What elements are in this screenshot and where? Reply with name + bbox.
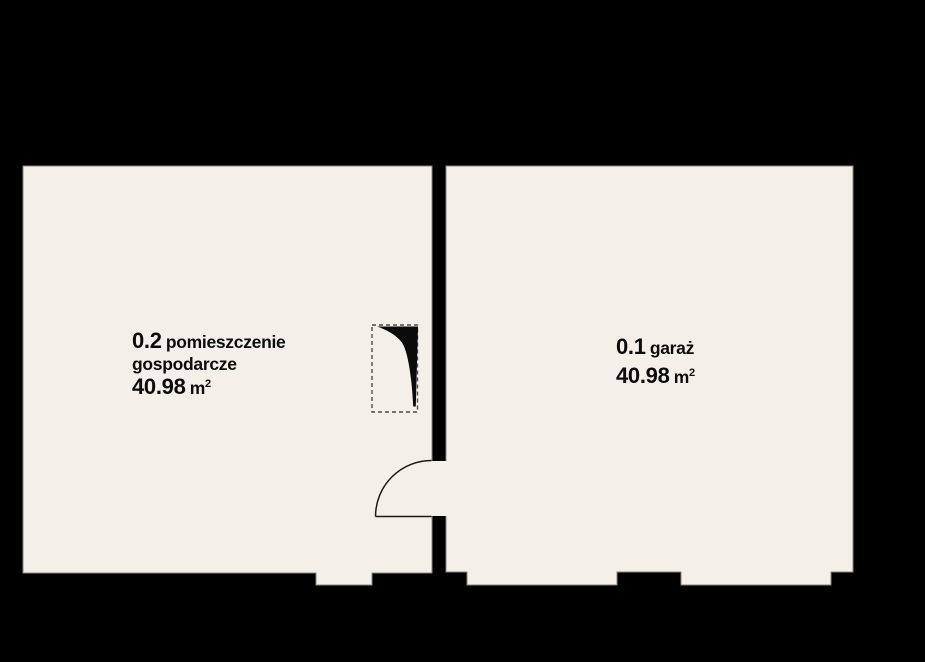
room-area-unit: m2 [190,378,211,398]
room-area-value: 40.98 [616,363,670,388]
room-area: 40.98 m2 [616,363,836,392]
floor-plan: 0.2 pomieszczenie gospodarcze 40.98 m2 0… [0,0,925,662]
room-area: 40.98 m2 [132,376,310,400]
room-area-unit: m2 [674,367,695,387]
room-area-exponent: 2 [205,378,211,390]
room-area-unit-symbol: m [674,367,689,387]
room-number: 0.1 [616,334,646,359]
room-area-unit-symbol: m [190,378,205,398]
room-number: 0.2 [132,328,162,353]
doorway-gap [431,461,447,516]
room-name: garaż [650,338,694,358]
room-label-garaz: 0.1 garaż 40.98 m2 [616,334,836,392]
room-area-exponent: 2 [689,367,695,379]
room-area-value: 40.98 [132,374,186,399]
room-label-pomieszczenie-gospodarcze: 0.2 pomieszczenie gospodarcze 40.98 m2 [132,330,310,400]
